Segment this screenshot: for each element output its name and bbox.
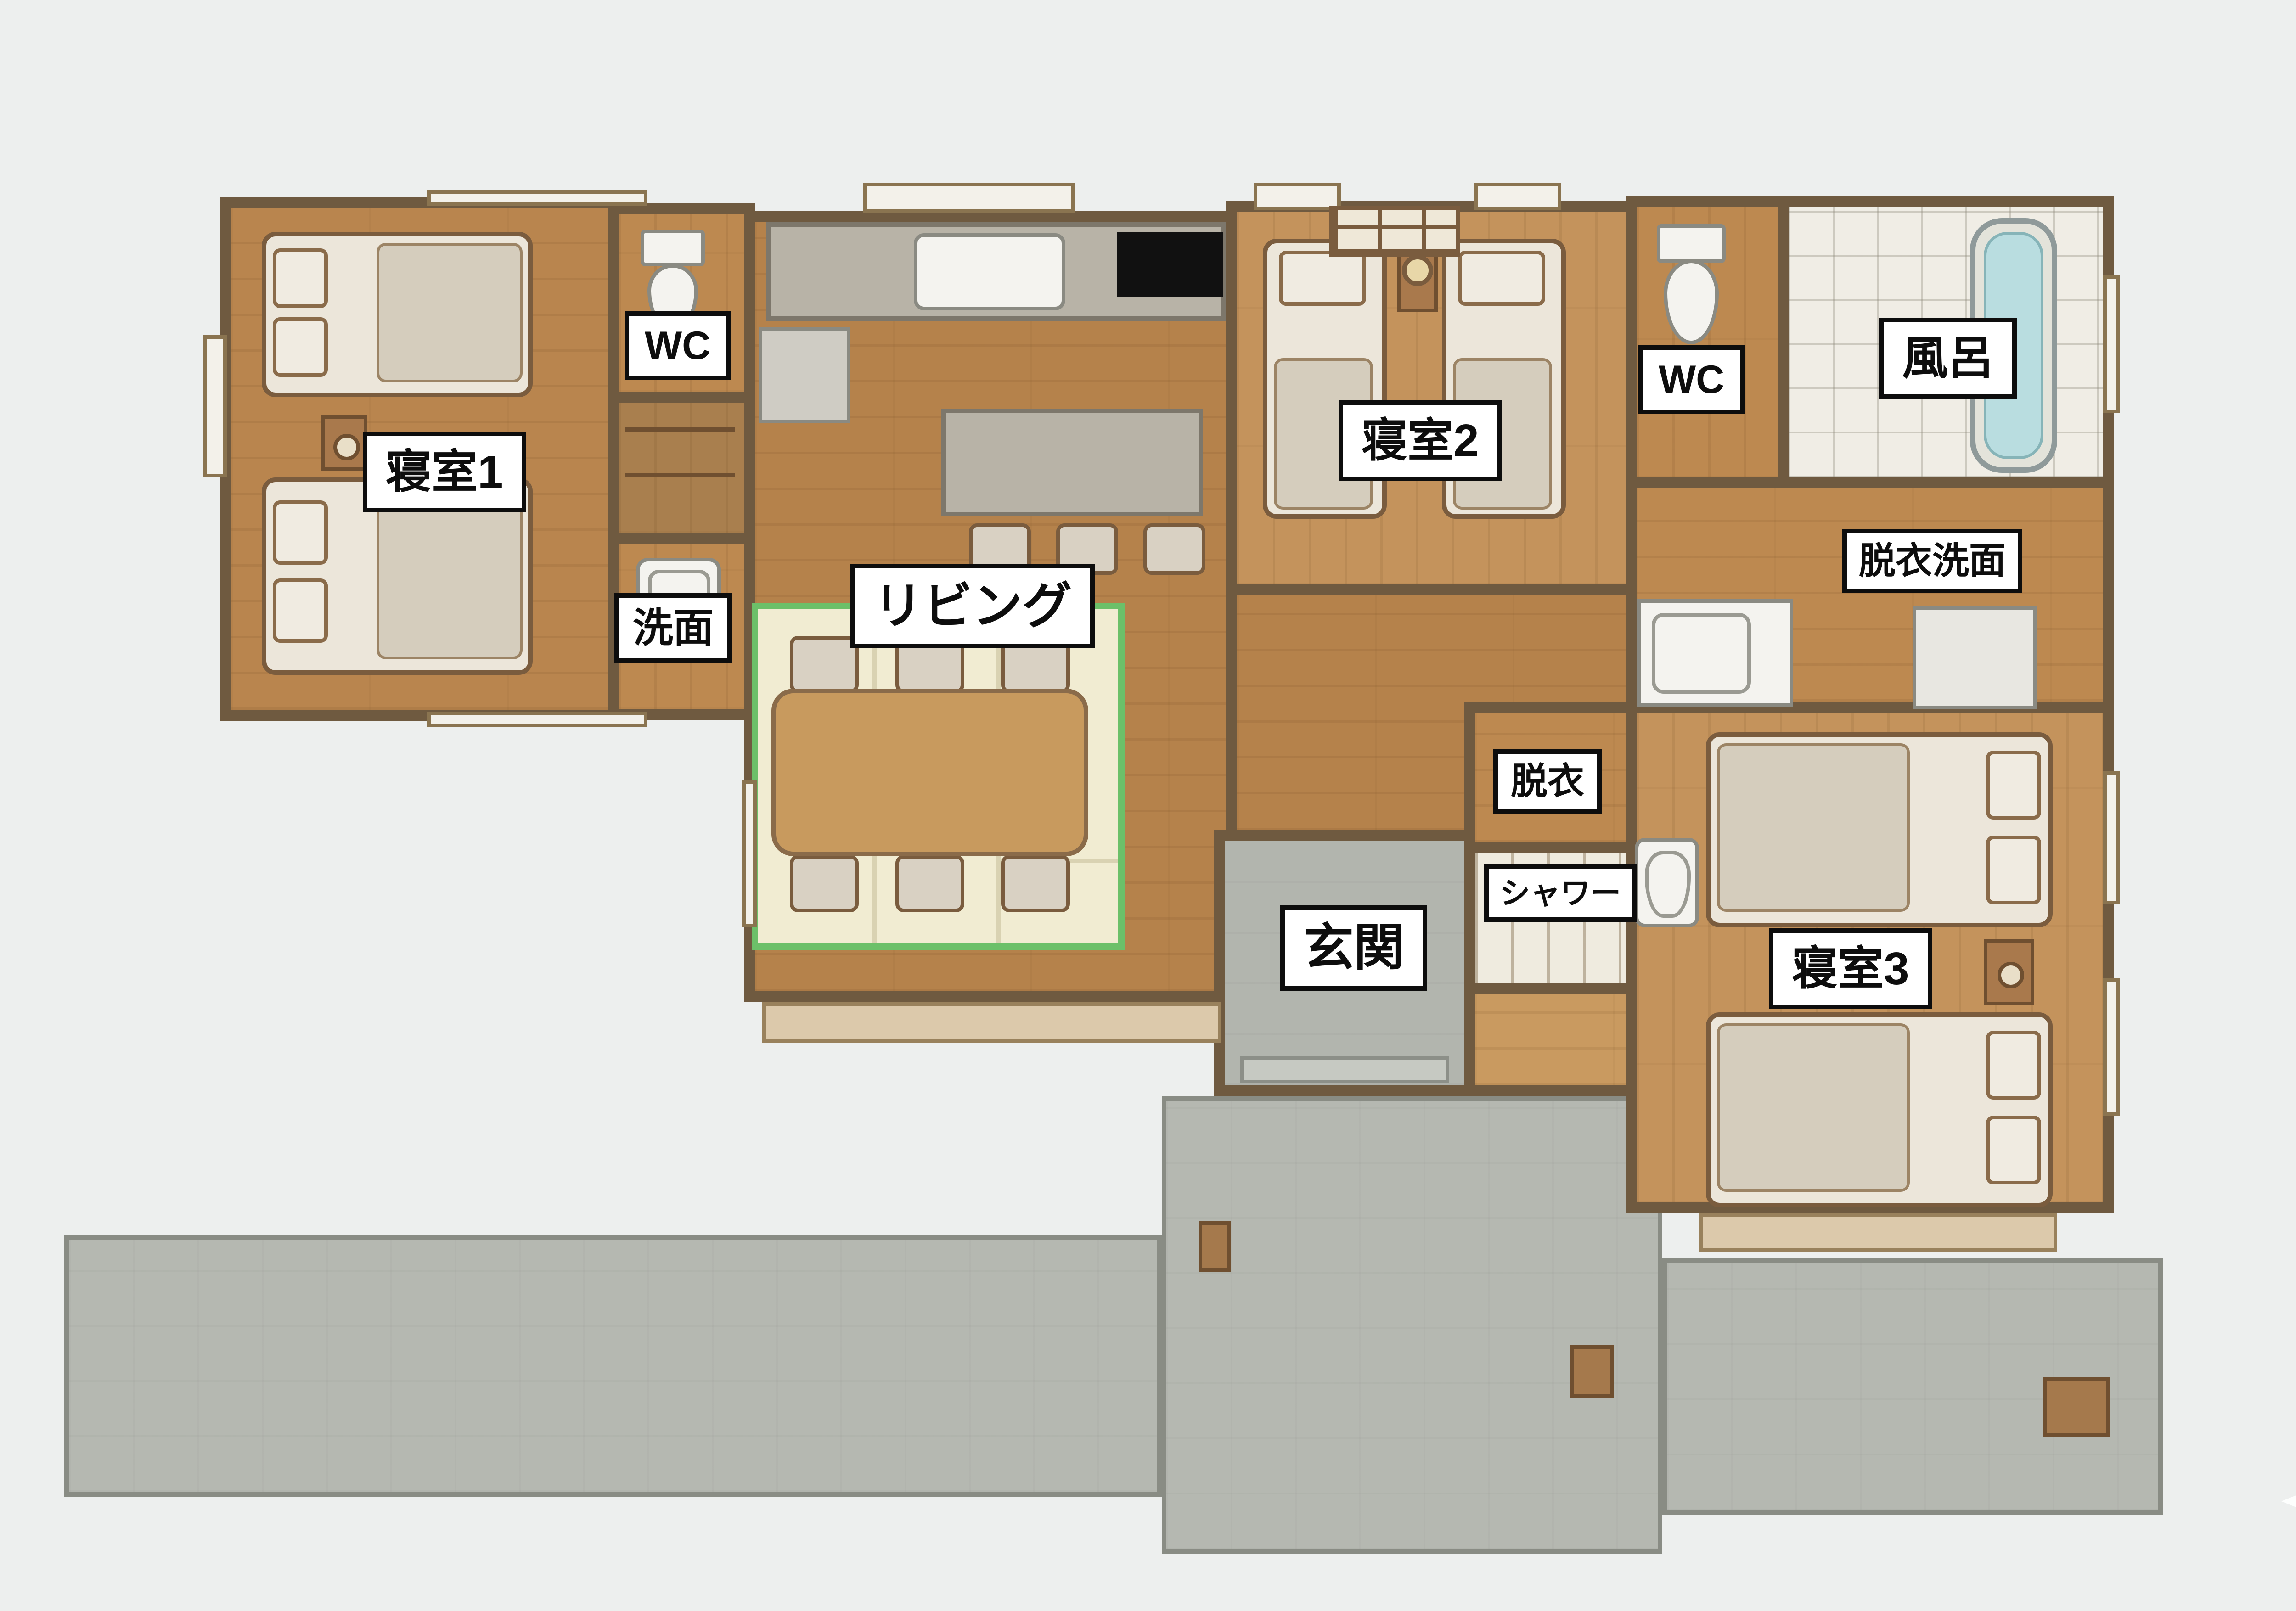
room-label-dressing-washroom: 脱衣洗面: [1842, 529, 2022, 593]
room-label-washroom: 洗面: [614, 593, 732, 663]
room-hall-closet: [608, 392, 755, 544]
bay-window-bedroom2-left: [1254, 183, 1341, 210]
vanity-sink: [1637, 599, 1793, 707]
refrigerator: [759, 327, 850, 423]
terrace-center: [1162, 1096, 1662, 1554]
window-living-left: [742, 780, 757, 927]
step-stone: [1199, 1221, 1231, 1272]
lattice-window-bedroom2: [1329, 206, 1460, 257]
bay-window-bedroom2-right: [1474, 183, 1561, 210]
window-bedroom1-top: [427, 190, 647, 206]
terrace-left-deck: [64, 1235, 1162, 1497]
dining-chair: [790, 636, 859, 693]
bed: [1706, 1012, 2053, 1207]
bedroom3-sink: [1635, 838, 1699, 927]
washing-machine: [1913, 606, 2037, 709]
sparkle-icon: [2281, 1453, 2296, 1549]
porch-step-living: [762, 1002, 1221, 1043]
bay-window-bedroom1-left: [203, 335, 227, 477]
step-stone: [1570, 1345, 1614, 1398]
closet-shelf: [625, 473, 735, 477]
room-label-wc-right: WC: [1638, 345, 1745, 414]
entrance-step: [1240, 1056, 1449, 1083]
closet-shelf: [625, 427, 735, 432]
door-bedroom3-right: [2103, 978, 2120, 1116]
room-label-bedroom1: 寝室1: [363, 432, 526, 512]
nightstand: [1984, 939, 2034, 1005]
step-stone: [2043, 1377, 2110, 1437]
bed: [262, 232, 533, 397]
dining-chair: [895, 855, 964, 912]
window-bath-right: [2103, 275, 2120, 413]
room-label-living: リビング: [850, 564, 1095, 648]
bay-window-kitchen-top: [863, 183, 1075, 213]
bed: [1706, 732, 2053, 927]
room-label-bedroom2: 寝室2: [1339, 400, 1502, 481]
room-label-shower: シャワー: [1484, 864, 1637, 922]
room-shower-step: [1464, 983, 1637, 1096]
room-label-entrance: 玄関: [1280, 905, 1427, 991]
window-bedroom1-bottom: [427, 712, 647, 727]
dining-table: [771, 689, 1088, 856]
room-label-bedroom3: 寝室3: [1769, 928, 1932, 1009]
window-bedroom3-right: [2103, 771, 2120, 904]
room-label-dressing: 脱衣: [1493, 749, 1602, 814]
toilet: [1657, 224, 1726, 263]
dining-chair: [790, 855, 859, 912]
stove-cooktop: [1117, 232, 1223, 297]
table-lamp: [1402, 255, 1433, 286]
island-stool: [1143, 523, 1205, 575]
room-label-wc-left: WC: [625, 311, 731, 380]
nightstand: [321, 415, 367, 471]
room-label-bath: 風呂: [1879, 318, 2017, 399]
toilet: [641, 230, 705, 266]
dining-chair: [1001, 855, 1070, 912]
porch-step-bedroom3: [1699, 1213, 2057, 1252]
kitchen-island: [941, 409, 1203, 516]
kitchen-sink: [914, 233, 1065, 310]
